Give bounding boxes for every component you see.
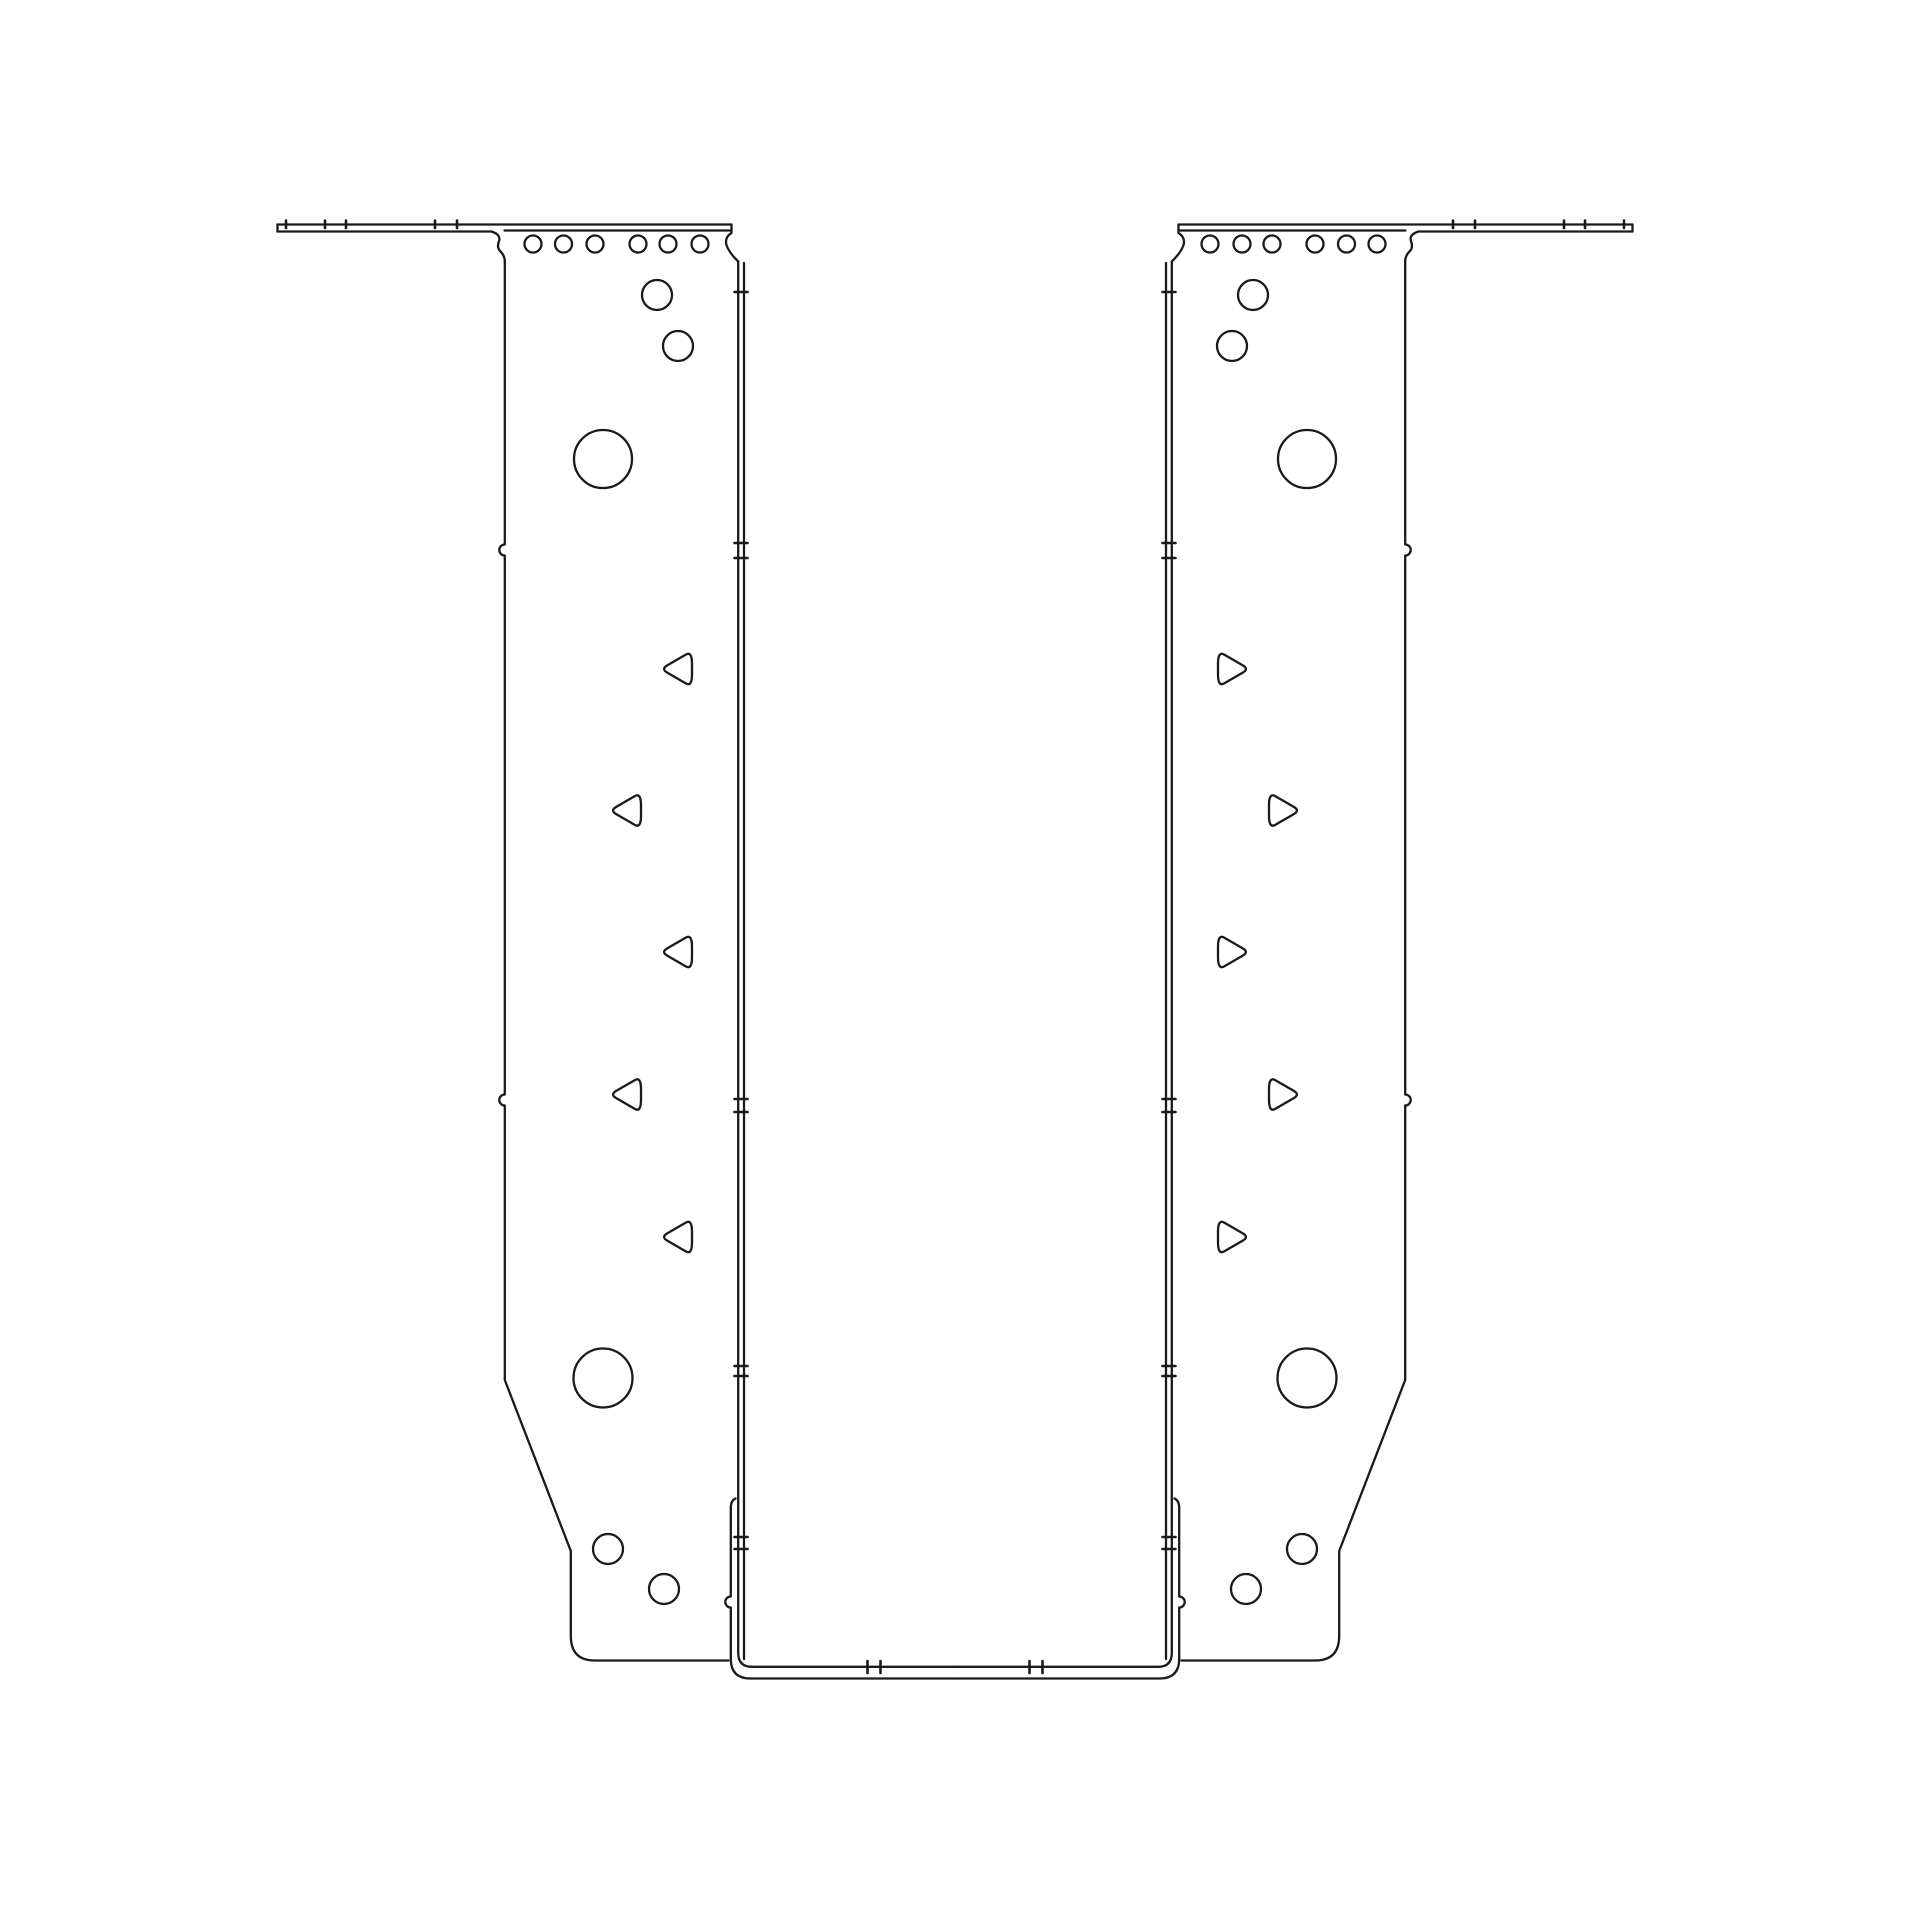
top-nail-hole: [630, 236, 647, 253]
plate-top-left-scallop: [1405, 232, 1418, 262]
plate-outer-edge: [499, 262, 728, 1661]
triangle-nail-hole: [1269, 795, 1297, 825]
top-nail-hole: [525, 236, 542, 253]
face-nail-hole: [642, 280, 672, 310]
lower-bolt-hole: [574, 1349, 633, 1408]
upper-bolt-hole: [574, 430, 632, 488]
top-nail-hole: [555, 236, 572, 253]
triangle-nail-hole: [613, 1079, 641, 1109]
top-nail-hole: [1369, 236, 1386, 253]
seat-outer-line: [725, 1499, 955, 1679]
top-nail-hole: [1307, 236, 1324, 253]
triangle-nail-hole: [664, 1222, 692, 1252]
top-nail-hole: [660, 236, 677, 253]
triangle-nail-hole: [1218, 1222, 1246, 1252]
bottom-nail-hole: [1287, 1534, 1317, 1564]
triangle-nail-hole: [1218, 937, 1246, 967]
face-nail-hole: [663, 331, 693, 361]
left-side-plate-group: [278, 221, 956, 1679]
plate-top-left-scallop: [492, 232, 505, 262]
triangle-nail-hole: [1269, 1079, 1297, 1109]
top-nail-hole: [692, 236, 709, 253]
right-side-plate-group: [955, 221, 1633, 1679]
top-nail-hole: [1202, 236, 1219, 253]
bottom-nail-hole: [1231, 1574, 1261, 1604]
stirrup-inner-line: [955, 262, 1172, 1667]
drawing-stage: [0, 0, 1910, 1910]
face-nail-hole: [1238, 280, 1268, 310]
bottom-nail-hole: [649, 1574, 679, 1604]
top-nail-hole: [1338, 236, 1355, 253]
triangle-nail-hole: [613, 795, 641, 825]
triangle-nail-hole: [1218, 654, 1246, 684]
bottom-nail-hole: [593, 1534, 623, 1564]
upper-bolt-hole: [1278, 430, 1336, 488]
triangle-nail-hole: [664, 654, 692, 684]
triangle-nail-hole: [664, 937, 692, 967]
seat-outer-line: [955, 1499, 1185, 1679]
plate-outer-edge: [1182, 262, 1411, 1661]
face-nail-hole: [1217, 331, 1247, 361]
lower-bolt-hole: [1278, 1349, 1337, 1408]
top-nail-hole: [1234, 236, 1251, 253]
joist-hanger-diagram: [0, 0, 1910, 1910]
top-nail-hole: [1264, 236, 1281, 253]
top-nail-hole: [587, 236, 604, 253]
stirrup-inner-line: [738, 262, 955, 1667]
